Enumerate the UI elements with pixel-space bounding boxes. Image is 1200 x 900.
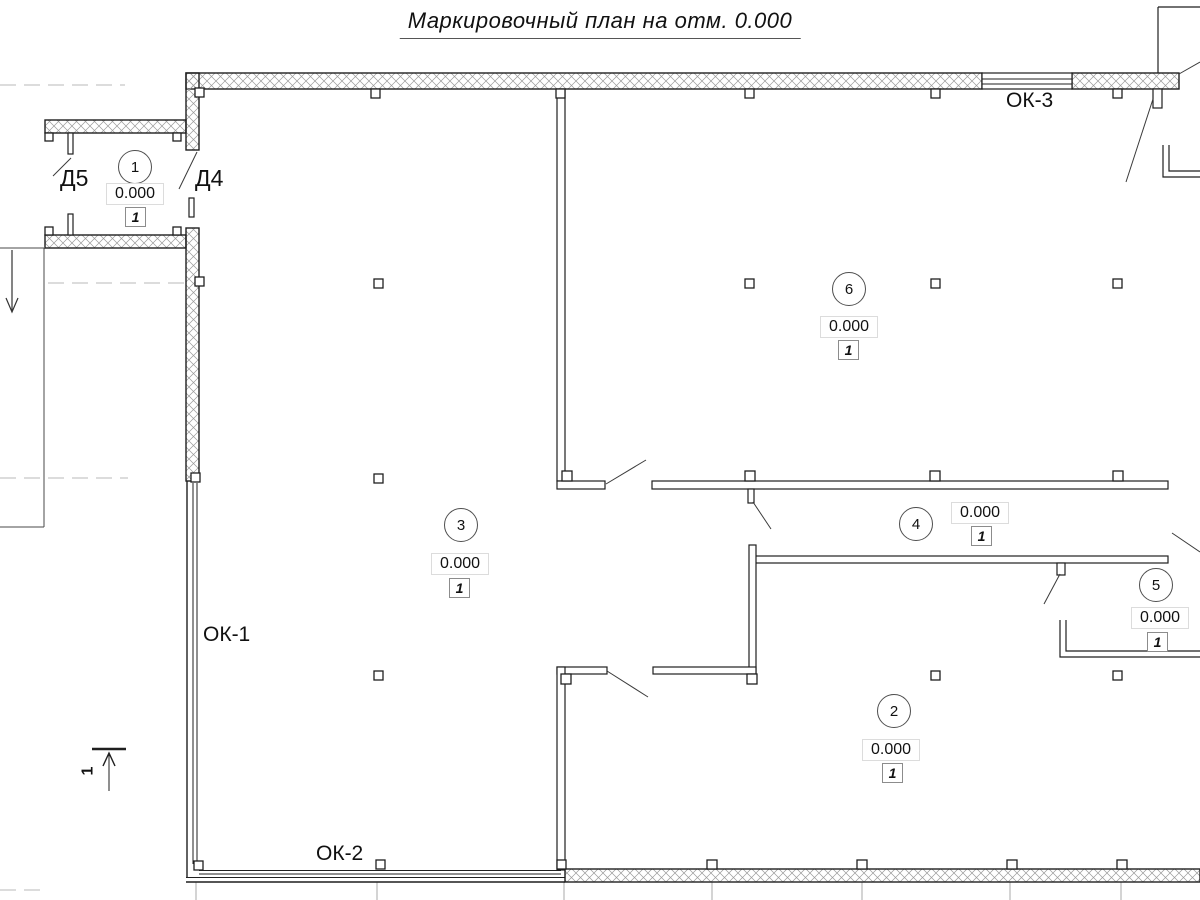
window-label-ok3: ОК-3: [1006, 90, 1053, 111]
window-ok1-glyph: [187, 481, 197, 878]
room-1-number: 1: [131, 159, 139, 176]
floor-plan-sheet: Маркировочный план на отм. 0.000 Д5 Д4 О…: [0, 0, 1200, 900]
room-4-finish-mark: 1: [971, 526, 992, 546]
room-4-number-bubble: 4: [899, 507, 933, 541]
page-title: Маркировочный план на отм. 0.000: [400, 8, 801, 39]
vestibule-wall-lower: [45, 235, 186, 248]
room-1-finish-mark: 1: [125, 207, 146, 227]
room-2-elevation: 0.000: [862, 739, 920, 761]
room-1-elevation: 0.000: [106, 183, 164, 205]
bottom-wall-right: [565, 869, 1200, 882]
room-3-elevation: 0.000: [431, 553, 489, 575]
floor-plan-canvas: [0, 0, 1200, 900]
room-3-number-bubble: 3: [444, 508, 478, 542]
column-markers: [45, 88, 1127, 870]
room-2-number: 2: [890, 703, 898, 720]
room-5-elevation: 0.000: [1131, 607, 1189, 629]
room-6-finish-mark: 1: [838, 340, 859, 360]
room-6-number-bubble: 6: [832, 272, 866, 306]
entry-arrow: [6, 250, 18, 312]
window-ok3-glyph: [982, 73, 1072, 89]
room-4-elevation: 0.000: [951, 502, 1009, 524]
window-ok2-glyph: [186, 871, 565, 883]
interior-walls: [68, 89, 1168, 870]
room-3-number: 3: [457, 517, 465, 534]
door-label-d4: Д4: [195, 167, 223, 190]
door-leaves-and-leaders: [53, 62, 1200, 697]
left-wall-mid: [186, 228, 199, 481]
room-5-number: 5: [1152, 577, 1160, 594]
room-5-finish-mark: 1: [1147, 632, 1168, 652]
room-5-number-bubble: 5: [1139, 568, 1173, 602]
door-label-d5: Д5: [60, 167, 88, 190]
top-wall-right: [1072, 73, 1179, 89]
vestibule-wall-upper: [45, 120, 186, 133]
room-6-elevation: 0.000: [820, 316, 878, 338]
room-1-number-bubble: 1: [118, 150, 152, 184]
left-wall-upper: [186, 73, 199, 150]
hatched-walls: [45, 73, 1200, 882]
top-wall-left: [186, 73, 982, 89]
window-label-ok2: ОК-2: [316, 843, 363, 864]
room-2-finish-mark: 1: [882, 763, 903, 783]
room-2-number-bubble: 2: [877, 694, 911, 728]
porch-outline: [0, 248, 44, 527]
room-3-finish-mark: 1: [449, 578, 470, 598]
grid-ticks-bottom: [196, 882, 1121, 900]
room-4-number: 4: [912, 516, 920, 533]
window-label-ok1: ОК-1: [203, 624, 250, 645]
room-6-number: 6: [845, 281, 853, 298]
section-cut-label: 1: [79, 767, 97, 776]
